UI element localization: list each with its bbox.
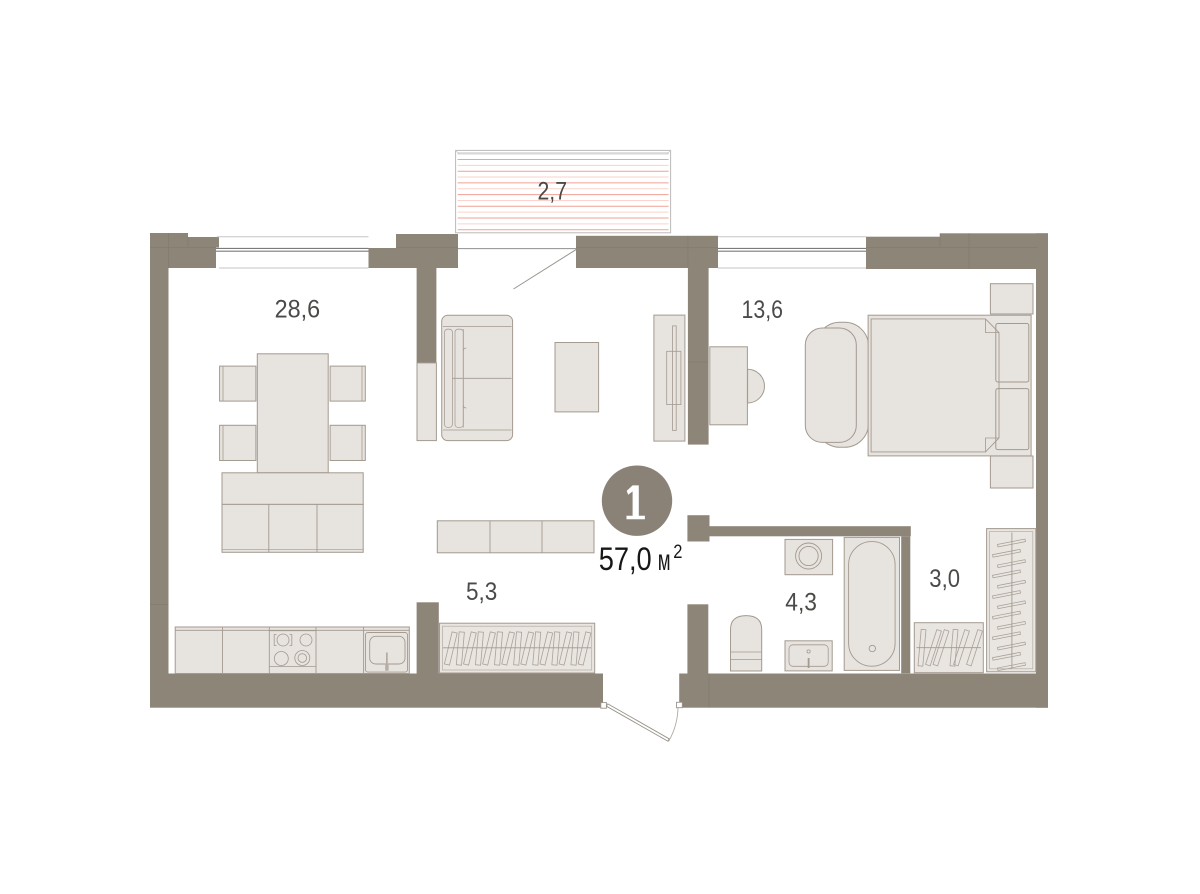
svg-text:5,3: 5,3 — [466, 578, 497, 606]
svg-text:м: м — [658, 544, 671, 577]
svg-text:2: 2 — [673, 542, 682, 563]
svg-text:28,6: 28,6 — [275, 296, 321, 324]
svg-text:57,0: 57,0 — [599, 541, 652, 577]
svg-text:4,3: 4,3 — [785, 589, 817, 617]
svg-text:2,7: 2,7 — [538, 178, 568, 206]
svg-text:13,6: 13,6 — [742, 296, 784, 324]
svg-text:3,0: 3,0 — [929, 565, 960, 593]
